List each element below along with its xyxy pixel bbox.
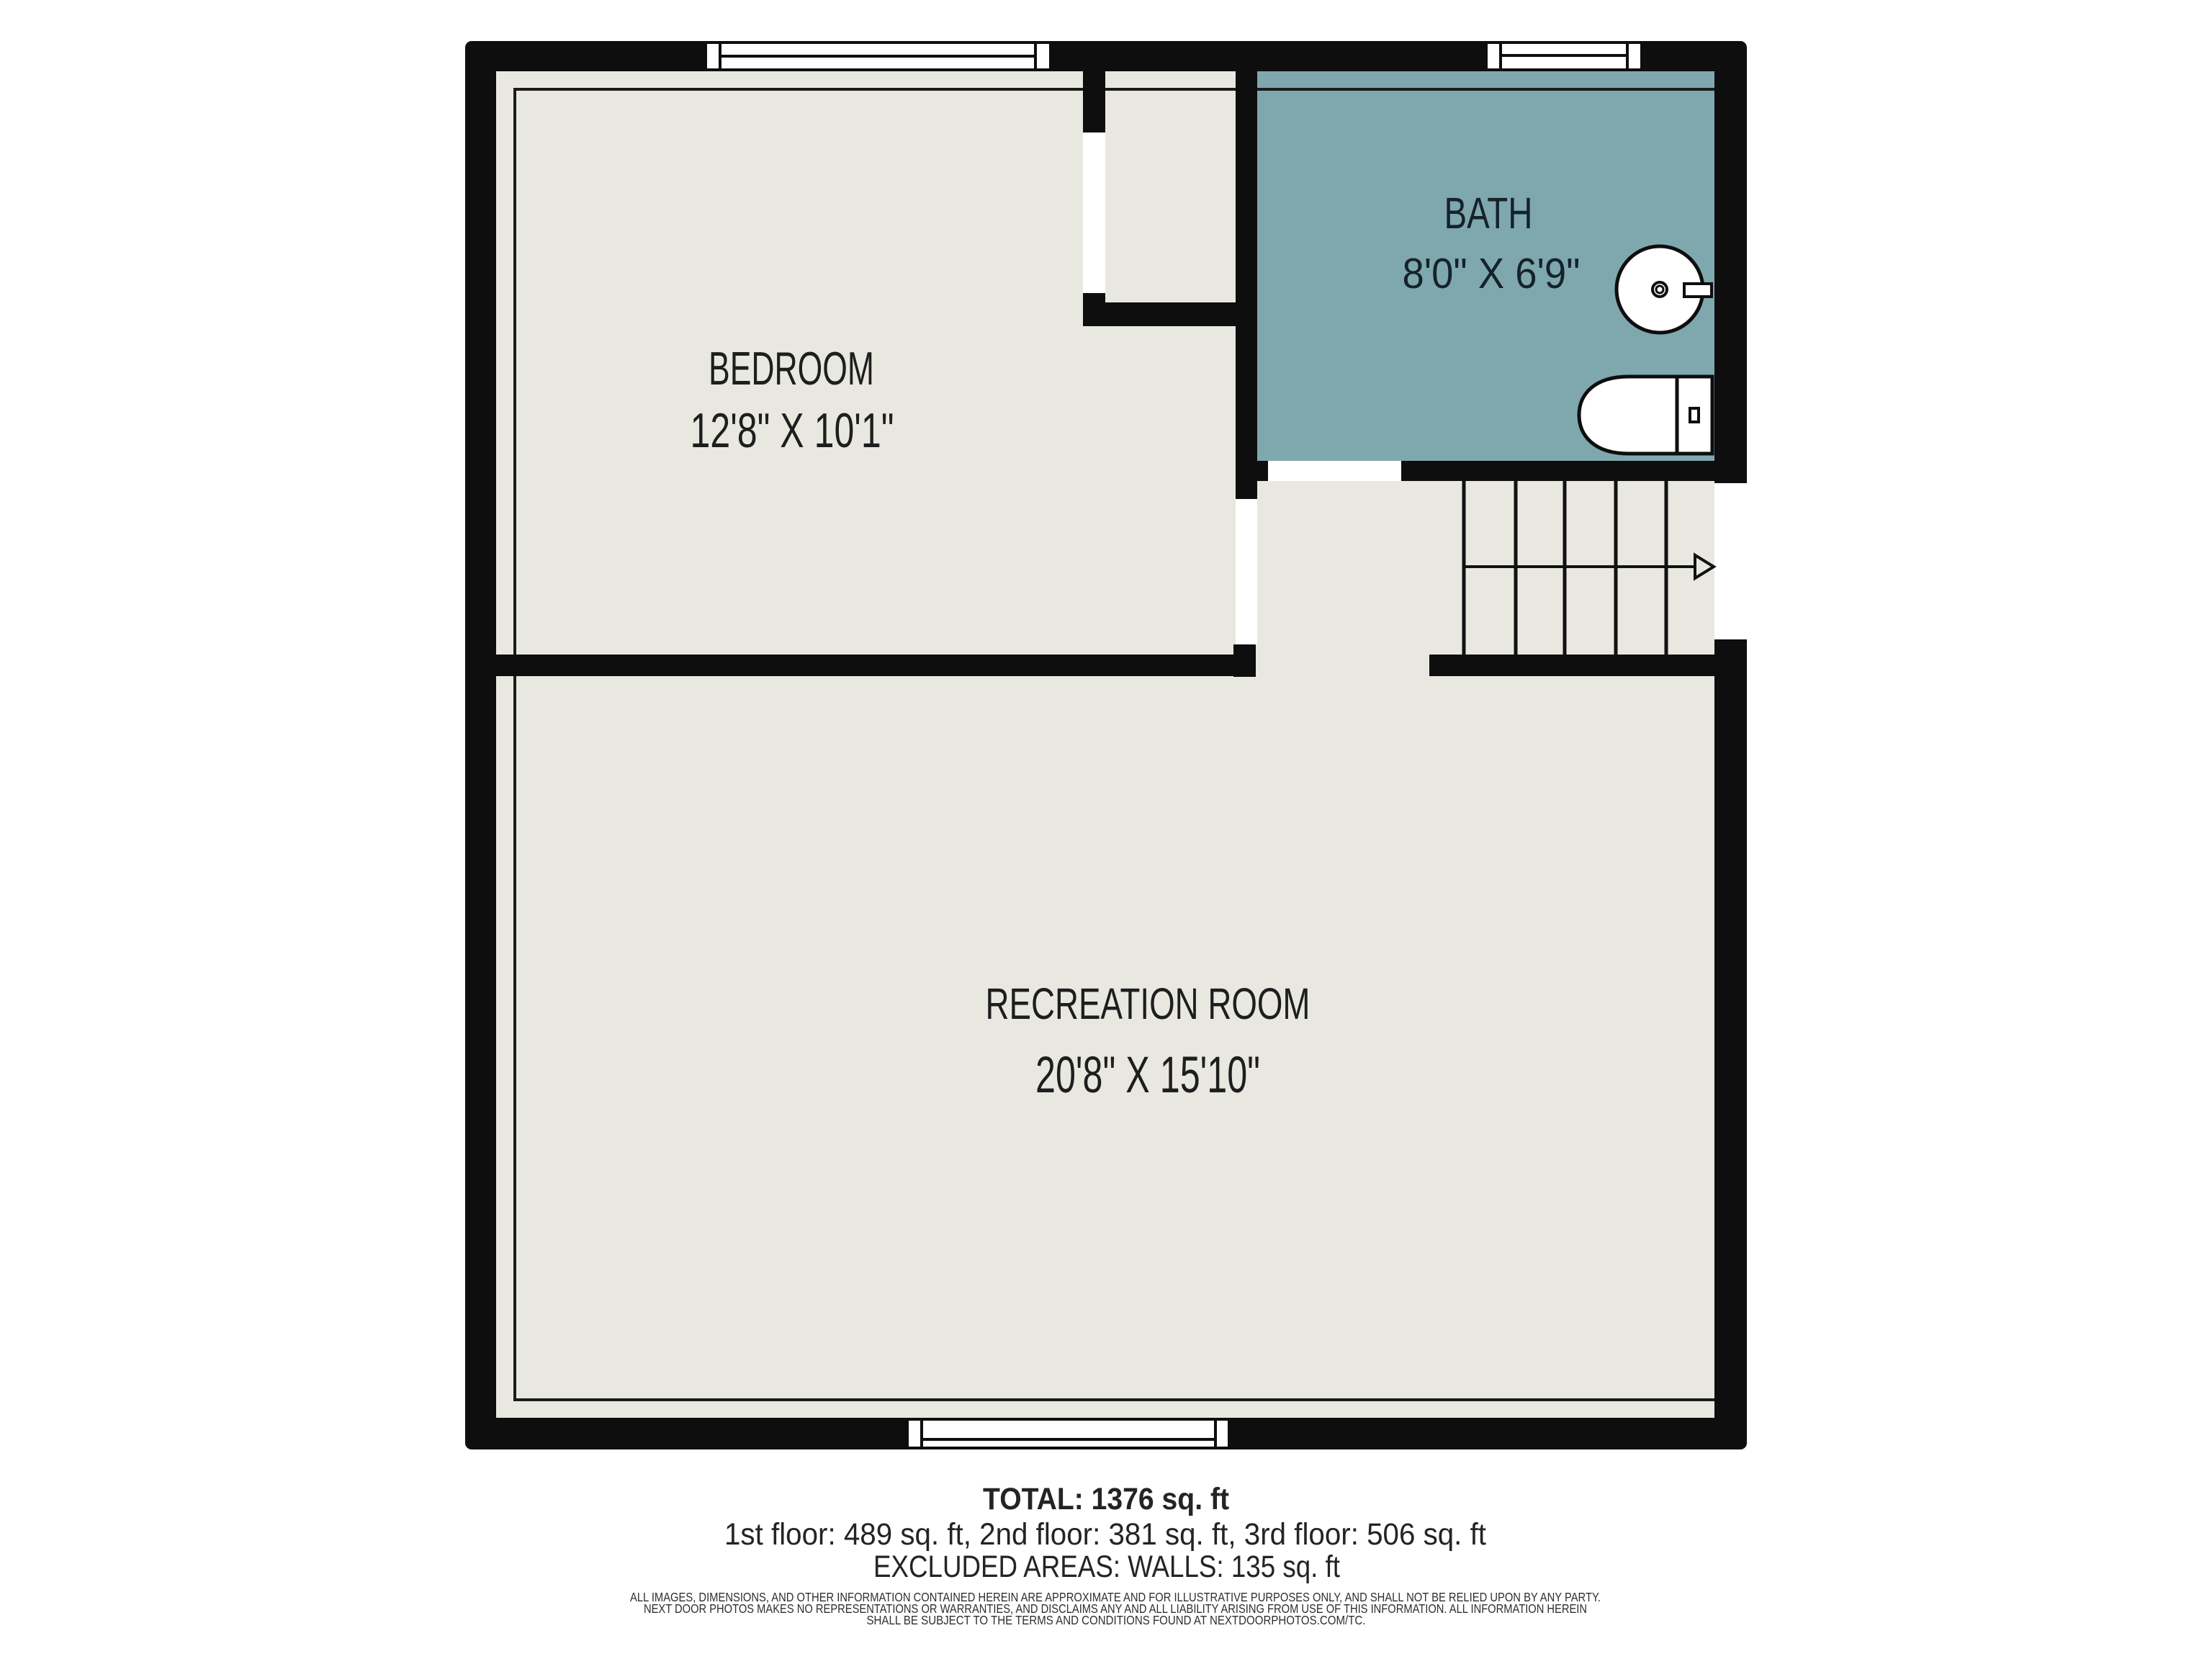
svg-text:12'8" X 10'1": 12'8" X 10'1"	[691, 403, 894, 458]
svg-text:SHALL BE SUBJECT TO THE TERMS: SHALL BE SUBJECT TO THE TERMS AND CONDIT…	[867, 1613, 1366, 1627]
svg-text:BATH: BATH	[1444, 189, 1533, 238]
svg-text:8'0" X 6'9": 8'0" X 6'9"	[1403, 250, 1581, 297]
svg-text:EXCLUDED AREAS: WALLS: 135 sq.: EXCLUDED AREAS: WALLS: 135 sq. ft	[873, 1550, 1340, 1584]
svg-text:20'8" X 15'10": 20'8" X 15'10"	[1035, 1047, 1260, 1104]
svg-text:1st floor: 489 sq. ft, 2nd flo: 1st floor: 489 sq. ft, 2nd floor: 381 sq…	[724, 1517, 1486, 1552]
svg-text:BEDROOM: BEDROOM	[709, 342, 874, 395]
svg-text:TOTAL: 1376 sq. ft: TOTAL: 1376 sq. ft	[983, 1482, 1229, 1516]
svg-text:RECREATION ROOM: RECREATION ROOM	[986, 979, 1310, 1028]
